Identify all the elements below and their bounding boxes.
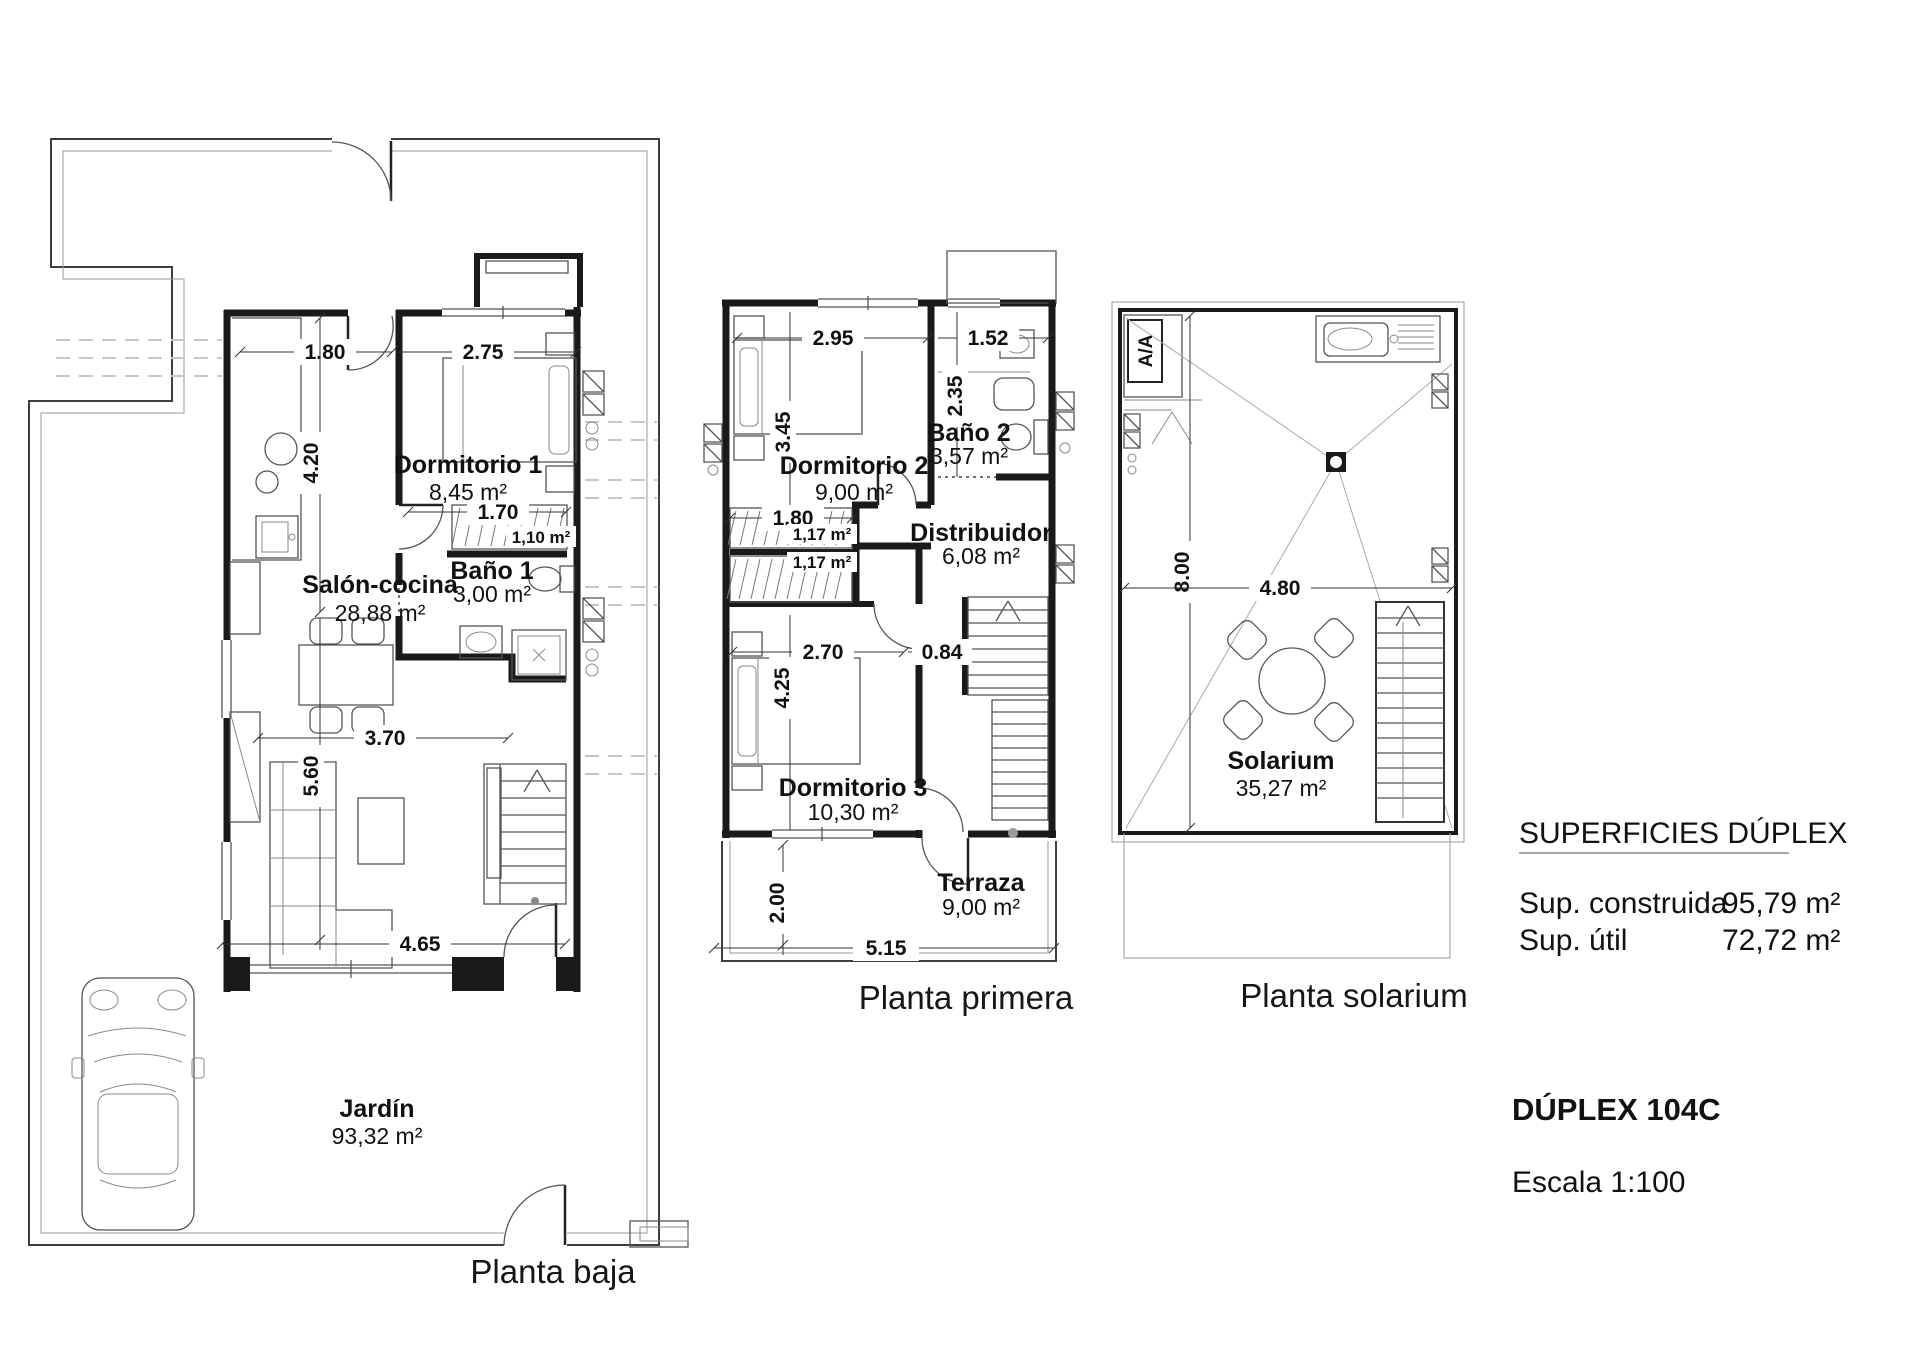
room-bano2-area: 3,57 m² xyxy=(930,443,1008,469)
dim-515: 5.15 xyxy=(866,937,907,960)
label-aa: A/A xyxy=(1136,334,1157,367)
dim-084: 0.84 xyxy=(922,641,963,664)
plan-planta-primera: 2.95 1.52 3.45 2.35 1.80 1,17 m² 1,17 m xyxy=(704,251,1074,1016)
vent-shafts xyxy=(583,371,604,676)
plot-boundary xyxy=(29,139,688,1247)
stairs-icon-ground xyxy=(484,764,566,905)
dim-560: 5.60 xyxy=(300,756,323,797)
title-planta-baja: Planta baja xyxy=(470,1253,636,1290)
bathtub-icon xyxy=(994,378,1034,410)
scale-label: Escala 1:100 xyxy=(1512,1166,1685,1199)
kitchen-counter xyxy=(230,318,301,822)
room-jardin-name: Jardín xyxy=(339,1095,414,1123)
salon-exit-door-arc xyxy=(504,903,556,957)
car-plan-icon xyxy=(72,978,204,1230)
toilet-icon xyxy=(529,566,574,592)
lower-terrace-outline xyxy=(1124,833,1450,958)
dim-420: 4.20 xyxy=(300,443,323,484)
room-jardin-area: 93,32 m² xyxy=(332,1123,423,1149)
floorplan-drawing: 1.80 2.75 4.20 5.60 1.70 xyxy=(0,0,1920,1356)
room-solarium-area: 35,27 m² xyxy=(1236,775,1327,801)
closet-area-117a: 1,17 m² xyxy=(793,525,852,544)
info-useful-value: 72,72 m² xyxy=(1722,924,1840,957)
room-dormitorio2-name: Dormitorio 2 xyxy=(780,452,929,480)
dim-152: 1.52 xyxy=(968,327,1009,350)
floorplan-sheet: 1.80 2.75 4.20 5.60 1.70 xyxy=(0,0,1920,1356)
room-salon-name: Salón-cocina xyxy=(302,571,459,599)
garden-door-arc xyxy=(504,1185,565,1245)
info-useful-label: Sup. útil xyxy=(1519,924,1627,957)
dim-200: 2.00 xyxy=(766,883,789,924)
coffee-table-icon xyxy=(358,798,404,864)
hob-icon xyxy=(265,433,297,465)
plan-planta-solarium: A/A xyxy=(1112,302,1468,1014)
room-salon-area: 28,88 m² xyxy=(335,600,426,626)
room-dormitorio1-name: Dormitorio 1 xyxy=(394,451,543,479)
solarium-sink-unit xyxy=(1316,316,1440,362)
room-labels-first: Dormitorio 2 9,00 m² Baño 2 3,57 m² Dist… xyxy=(779,419,1052,920)
room-terraza-area: 9,00 m² xyxy=(942,894,1020,920)
tv-board-icon xyxy=(487,768,501,878)
info-built-value: 95,79 m² xyxy=(1722,887,1840,920)
room-distribuidor-area: 6,08 m² xyxy=(942,543,1020,569)
dim-800: 8.00 xyxy=(1171,552,1194,593)
shower-icon xyxy=(512,630,566,680)
dim-370: 3.70 xyxy=(365,727,406,750)
room-dormitorio1-area: 8,45 m² xyxy=(429,479,507,505)
room-terraza-name: Terraza xyxy=(937,869,1025,897)
gate-door-arc xyxy=(332,141,391,201)
round-table-icon xyxy=(1220,615,1356,744)
room-dormitorio3-area: 10,30 m² xyxy=(808,799,899,825)
title-planta-primera: Planta primera xyxy=(859,979,1074,1016)
stairs-icon-first xyxy=(968,597,1048,820)
room-bano1-area: 3,00 m² xyxy=(453,581,531,607)
gallery-void xyxy=(947,251,1056,303)
plan-planta-baja: 1.80 2.75 4.20 5.60 1.70 xyxy=(29,139,688,1290)
dim-235: 2.35 xyxy=(944,375,967,416)
closet-area-117b: 1,17 m² xyxy=(793,553,852,572)
dim-270: 2.70 xyxy=(803,641,844,664)
dim-425: 4.25 xyxy=(771,667,794,708)
room-labels-solarium: Solarium 35,27 m² xyxy=(1228,747,1335,801)
stairs-icon-solarium xyxy=(1376,602,1444,822)
dim-345: 3.45 xyxy=(772,411,795,452)
dim-465: 4.65 xyxy=(400,933,441,956)
closet-area-110: 1,10 m² xyxy=(512,528,571,547)
unit-name: DÚPLEX 104C xyxy=(1512,1091,1720,1127)
dim-295: 2.95 xyxy=(813,327,854,350)
room-dormitorio3-name: Dormitorio 3 xyxy=(779,774,928,802)
info-block: SUPERFICIES DÚPLEX Sup. construida 95,79… xyxy=(1512,817,1847,1199)
room-solarium-name: Solarium xyxy=(1228,747,1335,775)
title-planta-solarium: Planta solarium xyxy=(1240,977,1467,1014)
info-title: SUPERFICIES DÚPLEX xyxy=(1519,817,1847,850)
dim-275: 2.75 xyxy=(463,341,504,364)
dim-180-baja: 1.80 xyxy=(305,341,346,364)
room-dormitorio2-area: 9,00 m² xyxy=(815,479,893,505)
dining-table-icon xyxy=(299,618,393,733)
info-built-label: Sup. construida xyxy=(1519,887,1728,920)
dim-480: 4.80 xyxy=(1260,577,1301,600)
porch-walls xyxy=(477,256,580,307)
